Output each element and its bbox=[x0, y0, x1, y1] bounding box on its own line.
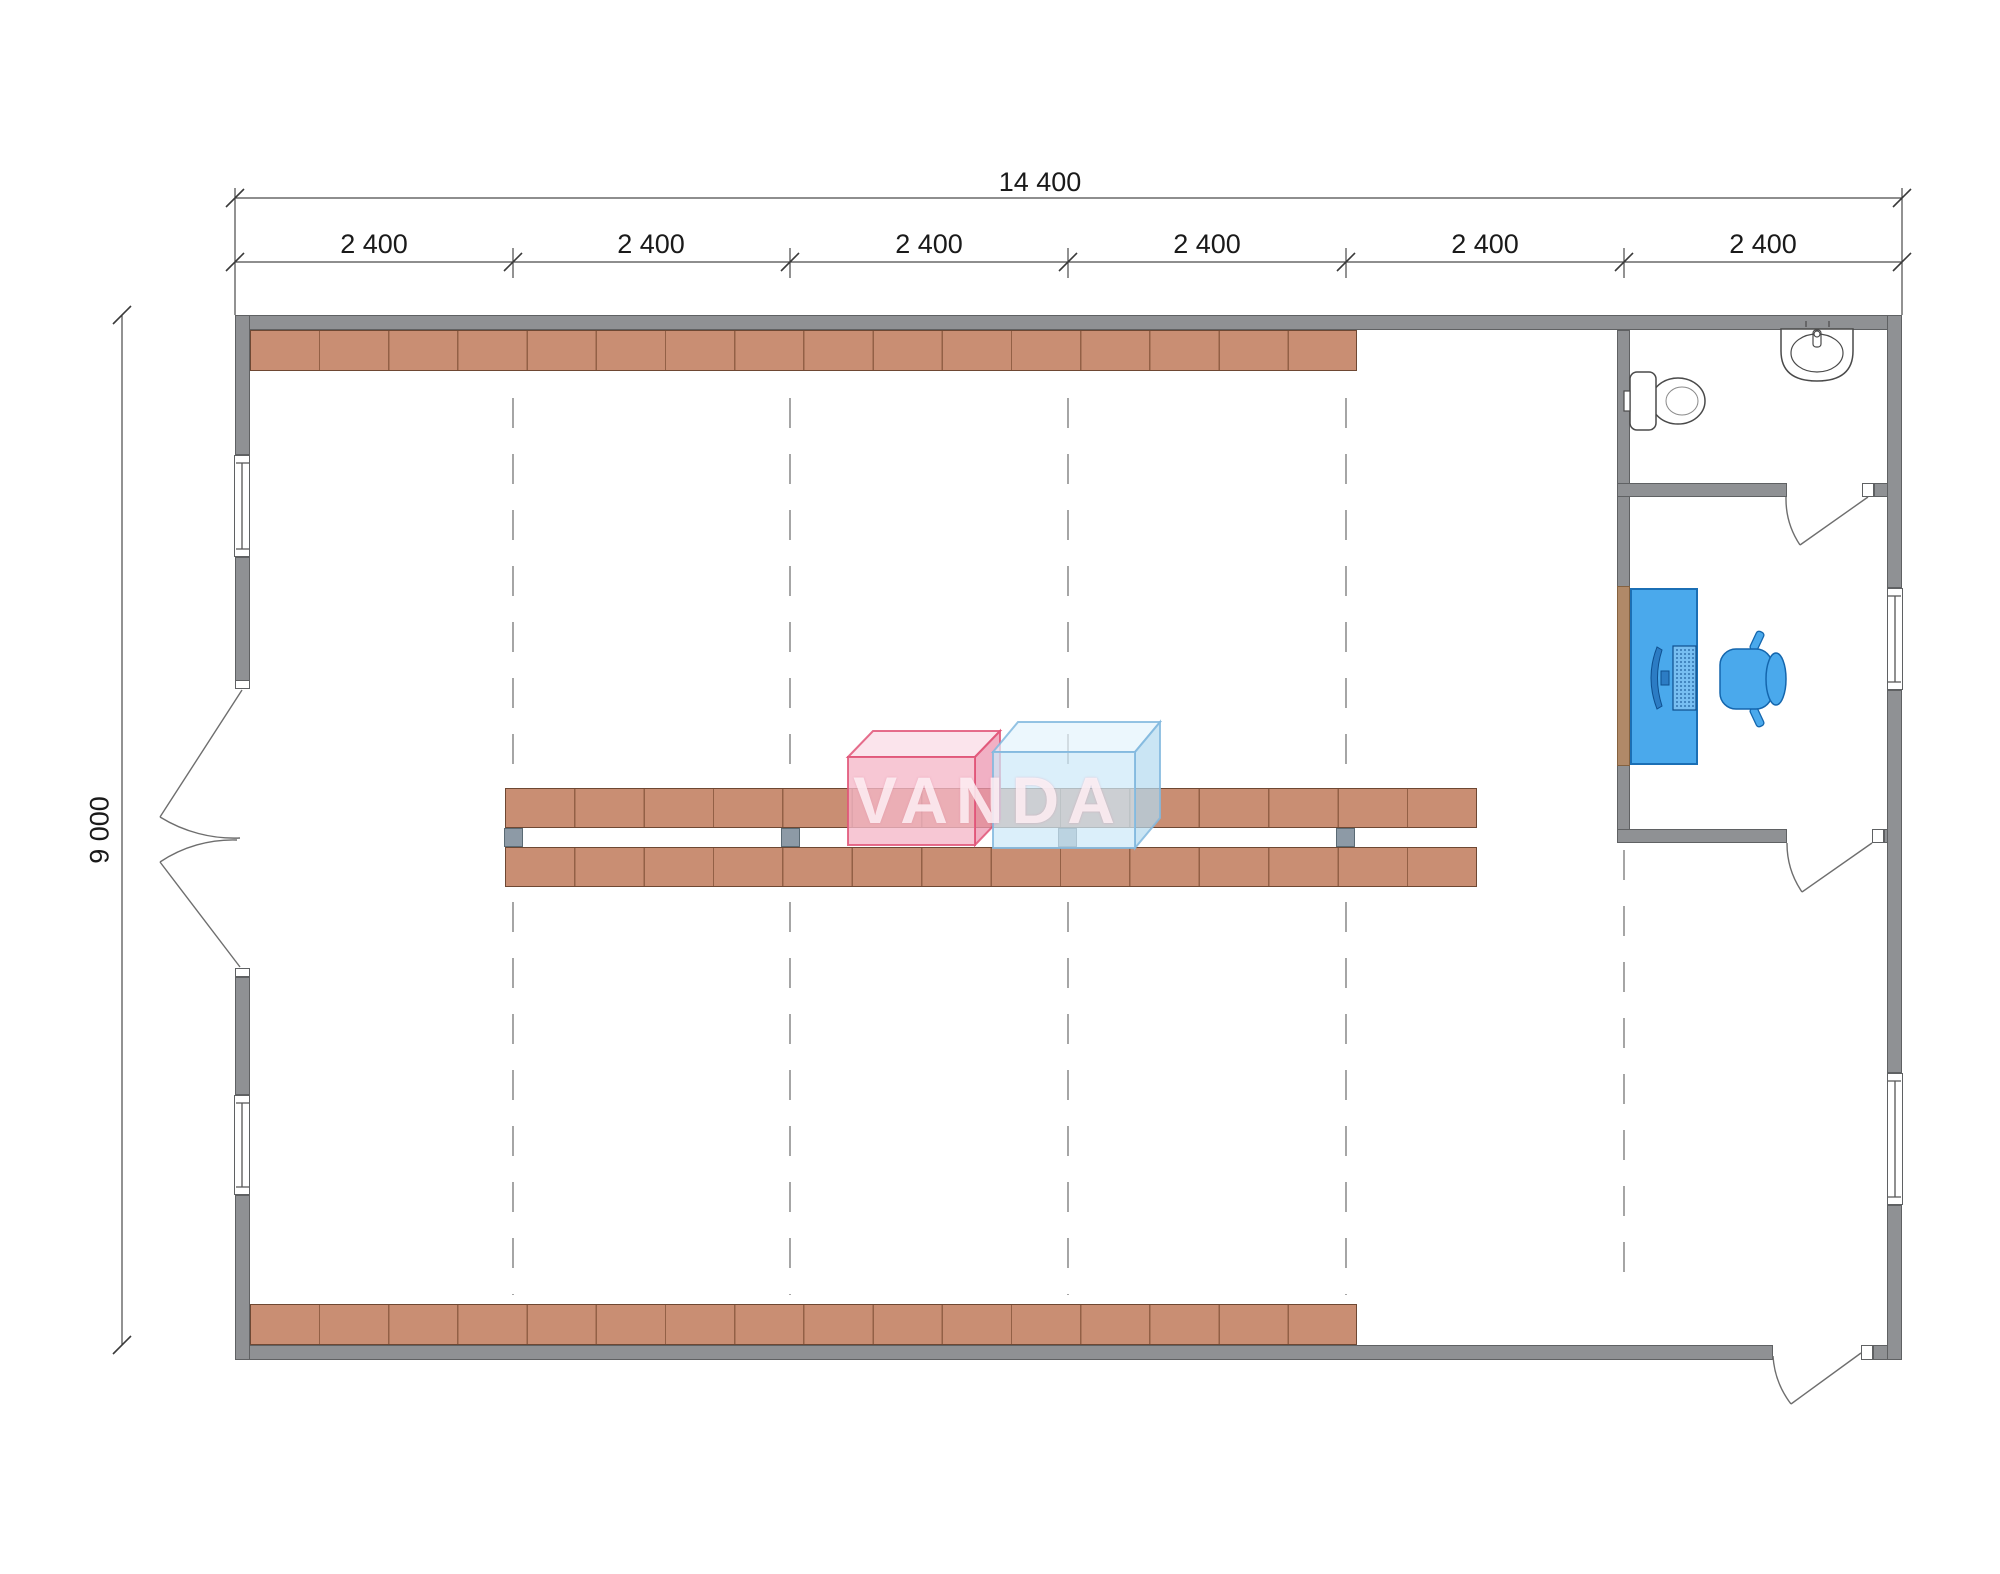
dimension-label-overall-height: 9 000 bbox=[85, 796, 116, 864]
dimension-label-bay-6: 2 400 bbox=[1729, 229, 1797, 260]
monitor-icon bbox=[1651, 647, 1669, 709]
dimension-label-bay-5: 2 400 bbox=[1451, 229, 1519, 260]
exterior-rear-door bbox=[1773, 1353, 1861, 1404]
dimension-label-bay-2: 2 400 bbox=[617, 229, 685, 260]
sink-fixture bbox=[1781, 321, 1853, 381]
toilet-fixture bbox=[1624, 372, 1705, 430]
dimension-label-bay-4: 2 400 bbox=[1173, 229, 1241, 260]
dimension-label-overall-width: 14 400 bbox=[999, 167, 1082, 198]
dimension-label-bay-3: 2 400 bbox=[895, 229, 963, 260]
dimension-label-bay-1: 2 400 bbox=[340, 229, 408, 260]
floor-plan-canvas: VANDA 14 400 2 400 2 400 2 400 2 400 2 4… bbox=[0, 0, 2000, 1574]
keyboard-icon bbox=[1673, 646, 1696, 710]
watermark-text: VANDA bbox=[853, 762, 1123, 838]
office-chair bbox=[1720, 630, 1786, 728]
office-door bbox=[1787, 843, 1872, 892]
entrance-double-door bbox=[160, 690, 242, 967]
bathroom-door bbox=[1786, 497, 1868, 545]
